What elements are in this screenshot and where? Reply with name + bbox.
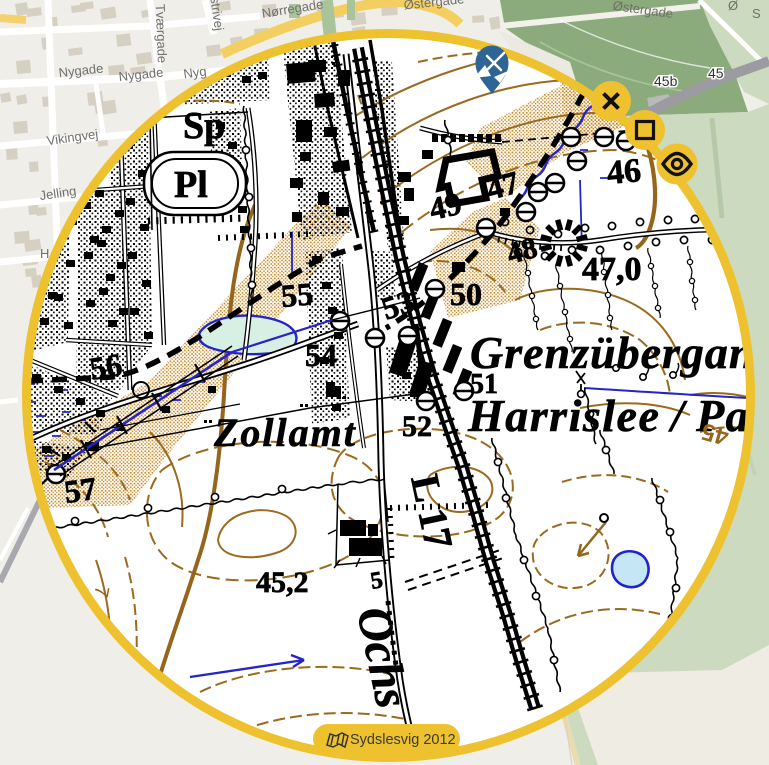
svg-text:Pl: Pl — [174, 164, 208, 206]
svg-text:47,0: 47,0 — [582, 251, 642, 288]
svg-text:52: 52 — [402, 410, 432, 443]
svg-text:51: 51 — [470, 369, 498, 400]
svg-text:46: 46 — [605, 152, 642, 192]
svg-text:Grenzübergan: Grenzübergan — [470, 327, 756, 378]
svg-text:H: H — [40, 246, 49, 261]
svg-text:45: 45 — [708, 65, 724, 81]
svg-text:Ø: Ø — [728, 0, 738, 13]
svg-text:Sydslesvig 2012: Sydslesvig 2012 — [350, 732, 456, 748]
svg-text:Sp: Sp — [183, 105, 225, 147]
svg-text:57: 57 — [62, 470, 99, 510]
svg-text:Zollamt: Zollamt — [213, 410, 357, 455]
svg-text:54: 54 — [305, 337, 337, 373]
svg-text:50: 50 — [450, 276, 482, 312]
svg-text:56: 56 — [87, 346, 125, 387]
svg-text:S: S — [752, 6, 761, 21]
svg-text:Nyg: Nyg — [182, 63, 207, 81]
svg-text:55: 55 — [279, 275, 314, 314]
svg-text:Tværgade: Tværgade — [153, 4, 170, 64]
svg-text:45b: 45b — [654, 73, 678, 89]
svg-text:45,2: 45,2 — [256, 566, 309, 599]
